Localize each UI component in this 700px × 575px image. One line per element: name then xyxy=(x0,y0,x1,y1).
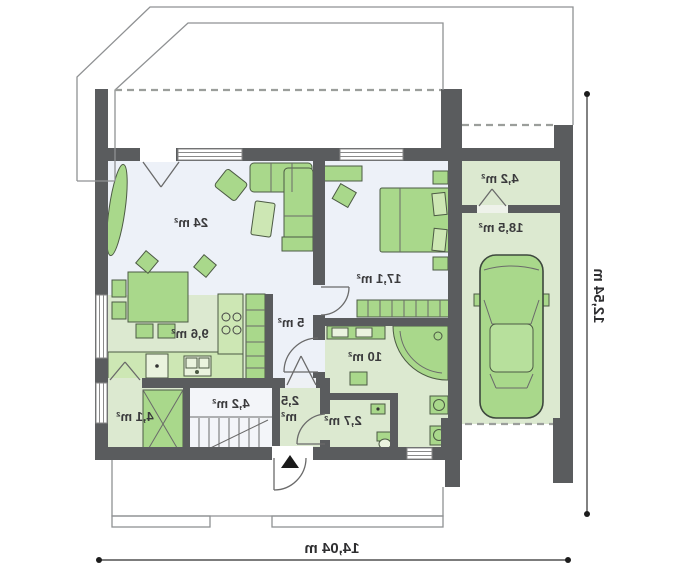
desk xyxy=(322,166,362,181)
coffee-table xyxy=(251,201,276,237)
room-label-stair-room: 4,2 m² xyxy=(212,396,250,411)
window-bath-bottom xyxy=(407,448,432,459)
wardrobe xyxy=(357,300,449,317)
window-bedroom-top xyxy=(340,149,403,160)
dimension-width-label: 14,04 m xyxy=(304,540,359,557)
wall-hall-bath-upper xyxy=(313,315,325,340)
floor-plan-svg: 12,54 m 14,04 m 24 m² 17,1 m² 9,6 m² 5 m… xyxy=(0,0,700,575)
washbasin xyxy=(356,328,372,337)
room-label-kitchen: 9,6 m² xyxy=(171,326,209,341)
wall-kitchen-south xyxy=(142,378,285,388)
room-label-bedroom: 17,1 m² xyxy=(356,271,401,286)
pillow xyxy=(432,192,447,215)
wall-wc-east xyxy=(390,400,398,447)
wall-wc-north xyxy=(320,393,398,400)
car xyxy=(474,255,549,418)
porch-step-right xyxy=(272,516,443,527)
nightstand xyxy=(433,257,448,270)
wall-garage-pillar-right xyxy=(553,418,573,483)
bath-cabinet xyxy=(350,372,367,385)
wall-pantry-east xyxy=(183,388,190,460)
nightstand xyxy=(433,171,448,184)
room-label-living: 24 m² xyxy=(173,215,208,230)
tv-bench xyxy=(282,237,313,251)
window-kitchen-left xyxy=(96,295,107,358)
dimension-height-label: 12,54 m xyxy=(590,268,607,323)
window-pantry-left xyxy=(96,383,107,423)
room-label-wc: 2,7 m² xyxy=(324,413,362,428)
room-label-garage: 18,5 m² xyxy=(478,220,523,235)
porch-step-left xyxy=(112,516,210,527)
wall-garage-east xyxy=(560,125,573,418)
wall-corner-block xyxy=(316,378,330,388)
wall-living-bedroom xyxy=(313,161,325,285)
wall-utility-garage-right xyxy=(508,205,560,213)
room-label-bathroom: 10 m² xyxy=(347,349,382,364)
sofa-vertical xyxy=(284,168,313,244)
room-label-hall: 5 m² xyxy=(277,315,304,330)
washing-machine xyxy=(430,396,448,414)
pillow xyxy=(432,228,447,251)
room-label-entry-1: 2,5 xyxy=(281,393,299,408)
wall-kitchen-hall xyxy=(265,294,273,383)
window-living-top xyxy=(178,149,242,160)
washbasin xyxy=(332,328,348,337)
wall-garage-west xyxy=(448,148,462,418)
room-label-entry-2: m² xyxy=(280,409,297,424)
floor-plan-page: 12,54 m 14,04 m 24 m² 17,1 m² 9,6 m² 5 m… xyxy=(0,0,700,575)
car-roof xyxy=(490,324,533,372)
kitchen-tall-units xyxy=(246,294,265,380)
room-label-utility: 4,2 m² xyxy=(481,171,519,186)
wall-terrace-pillar xyxy=(441,89,462,161)
dining-chair xyxy=(112,280,126,297)
room-label-pantry: 4,1 m² xyxy=(116,409,154,424)
dining-chair xyxy=(136,324,153,338)
wall-entry-wc-upper xyxy=(320,388,330,414)
wall-utility-garage-left xyxy=(460,205,477,213)
hall-floor xyxy=(273,287,320,388)
kitchen-counter-side xyxy=(218,294,243,354)
wall-porch-pillar xyxy=(445,447,460,487)
dining-chair xyxy=(112,302,126,319)
wall-bedroom-bath xyxy=(325,318,460,326)
porch-outline xyxy=(112,460,443,516)
dining-table xyxy=(128,272,188,322)
